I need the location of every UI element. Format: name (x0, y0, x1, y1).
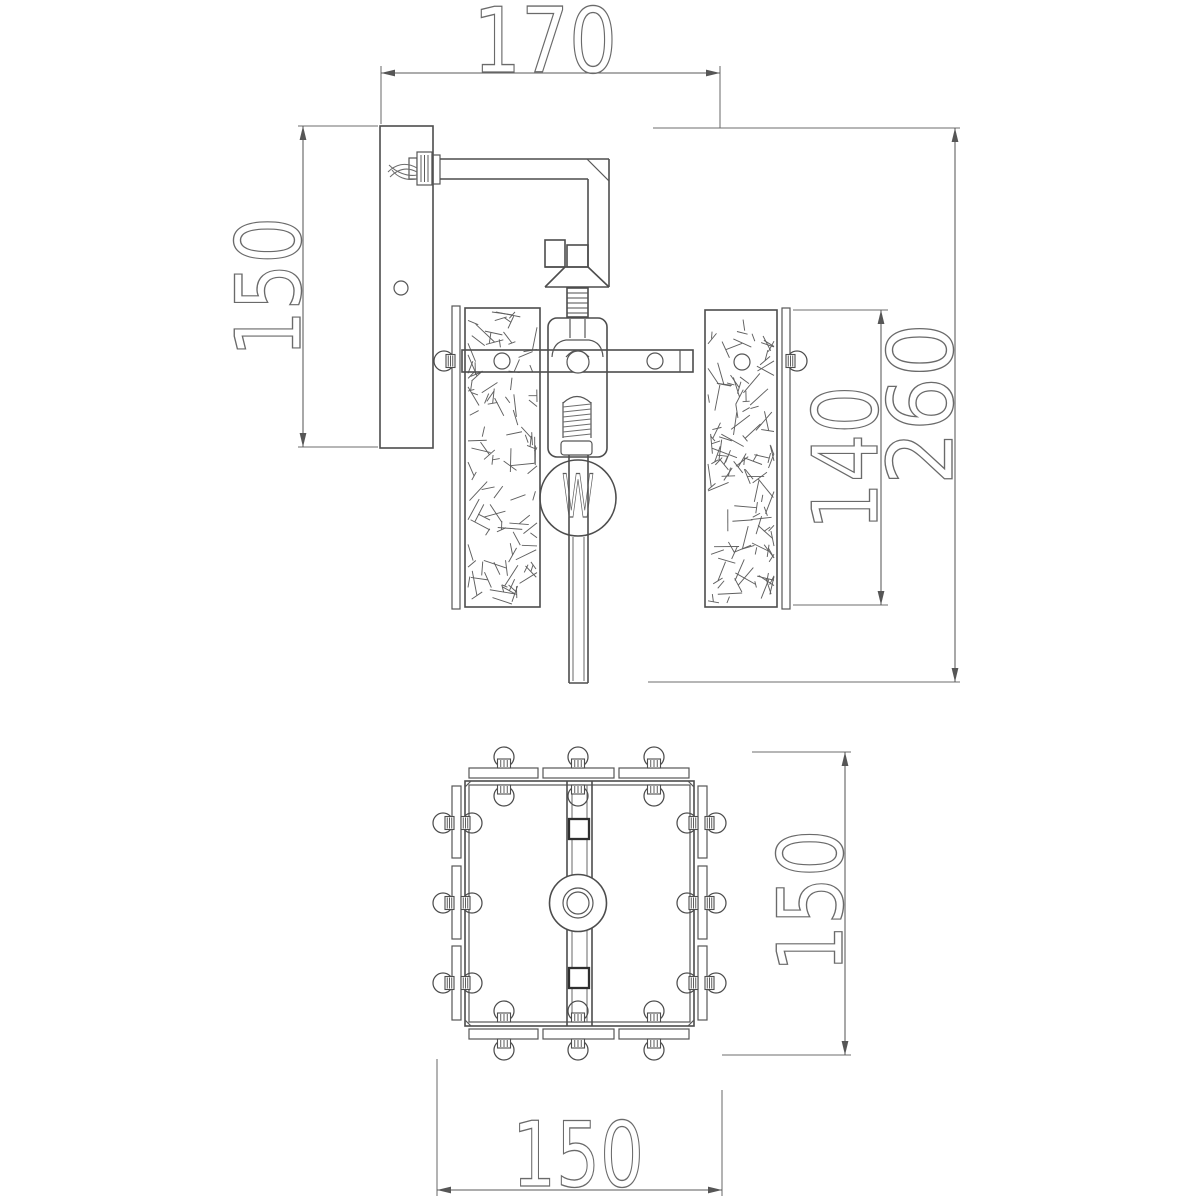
screw-knob (644, 1001, 664, 1022)
clamp-square (569, 819, 589, 839)
dim-backplate-height: 150 (217, 126, 378, 447)
screw-knob (433, 893, 454, 913)
bar-hole (647, 353, 663, 369)
bar-center-hole (567, 351, 589, 373)
screw-knob (705, 893, 726, 913)
bulb-thread-base (561, 397, 592, 456)
joint-block (545, 240, 565, 267)
wire-gland (409, 152, 440, 185)
dim-text-150-left: 150 (217, 217, 322, 357)
clamp-square (569, 968, 589, 988)
dim-text-150-bottom: 150 (512, 1103, 644, 1200)
side-view: 170 150 140 260 (217, 0, 974, 683)
screw-knob (461, 813, 482, 833)
bulb-wattage-symbol: W (562, 462, 594, 532)
screw-knob (568, 785, 588, 806)
screw-knob (705, 813, 726, 833)
screw-knob (433, 973, 454, 993)
screw-knob (677, 893, 698, 913)
screw-knob (494, 747, 514, 768)
bottom-view: 150 150 (433, 747, 864, 1200)
screw-knob (568, 1001, 588, 1022)
screw-knob (644, 785, 664, 806)
threaded-nipple (567, 288, 588, 317)
bulb-collar (561, 441, 592, 455)
dim-text-170: 170 (473, 0, 617, 94)
screw-knob (494, 1001, 514, 1022)
screw-knob (568, 747, 588, 768)
screw-knob (434, 351, 455, 371)
screw-knob (677, 813, 698, 833)
dim-shade-depth: 150 (722, 752, 864, 1055)
bulb-globe: W (540, 460, 616, 536)
center-strip (550, 781, 607, 1026)
glass-strip-edge (782, 308, 790, 609)
panel-hole (734, 354, 750, 370)
mounting-hole (394, 281, 408, 295)
screw-knob (494, 785, 514, 806)
screw-knob (677, 973, 698, 993)
screw-knob (568, 1039, 588, 1060)
drawing-canvas: 170 150 140 260 (0, 0, 1200, 1200)
lamp-technical-drawing: 170 150 140 260 (0, 0, 1200, 1200)
screw-knob (461, 893, 482, 913)
bulb-tip (563, 397, 591, 404)
bar-hole (494, 353, 510, 369)
screw-knob (705, 973, 726, 993)
screw-knob (433, 813, 454, 833)
glass-panel-left (452, 306, 540, 609)
stem-block (567, 245, 588, 267)
miter-joint (587, 159, 609, 181)
dim-projection: 170 (381, 0, 720, 128)
dim-text-150-right: 150 (759, 830, 864, 973)
screw-knob (461, 973, 482, 993)
power-wires (388, 164, 417, 179)
glass-strip-edge (452, 306, 460, 609)
dim-text-260: 260 (869, 323, 974, 485)
screw-knob (786, 351, 807, 371)
screw-knob (644, 747, 664, 768)
screw-knob (494, 1039, 514, 1060)
socket-ring (550, 875, 607, 932)
lamp-holder-cone (545, 240, 609, 287)
glass-panel-right (705, 308, 790, 609)
socket-body (548, 318, 607, 457)
screw-knob (644, 1039, 664, 1060)
dim-shade-width: 150 (437, 1059, 722, 1200)
glass-texture-hatch (708, 320, 774, 603)
